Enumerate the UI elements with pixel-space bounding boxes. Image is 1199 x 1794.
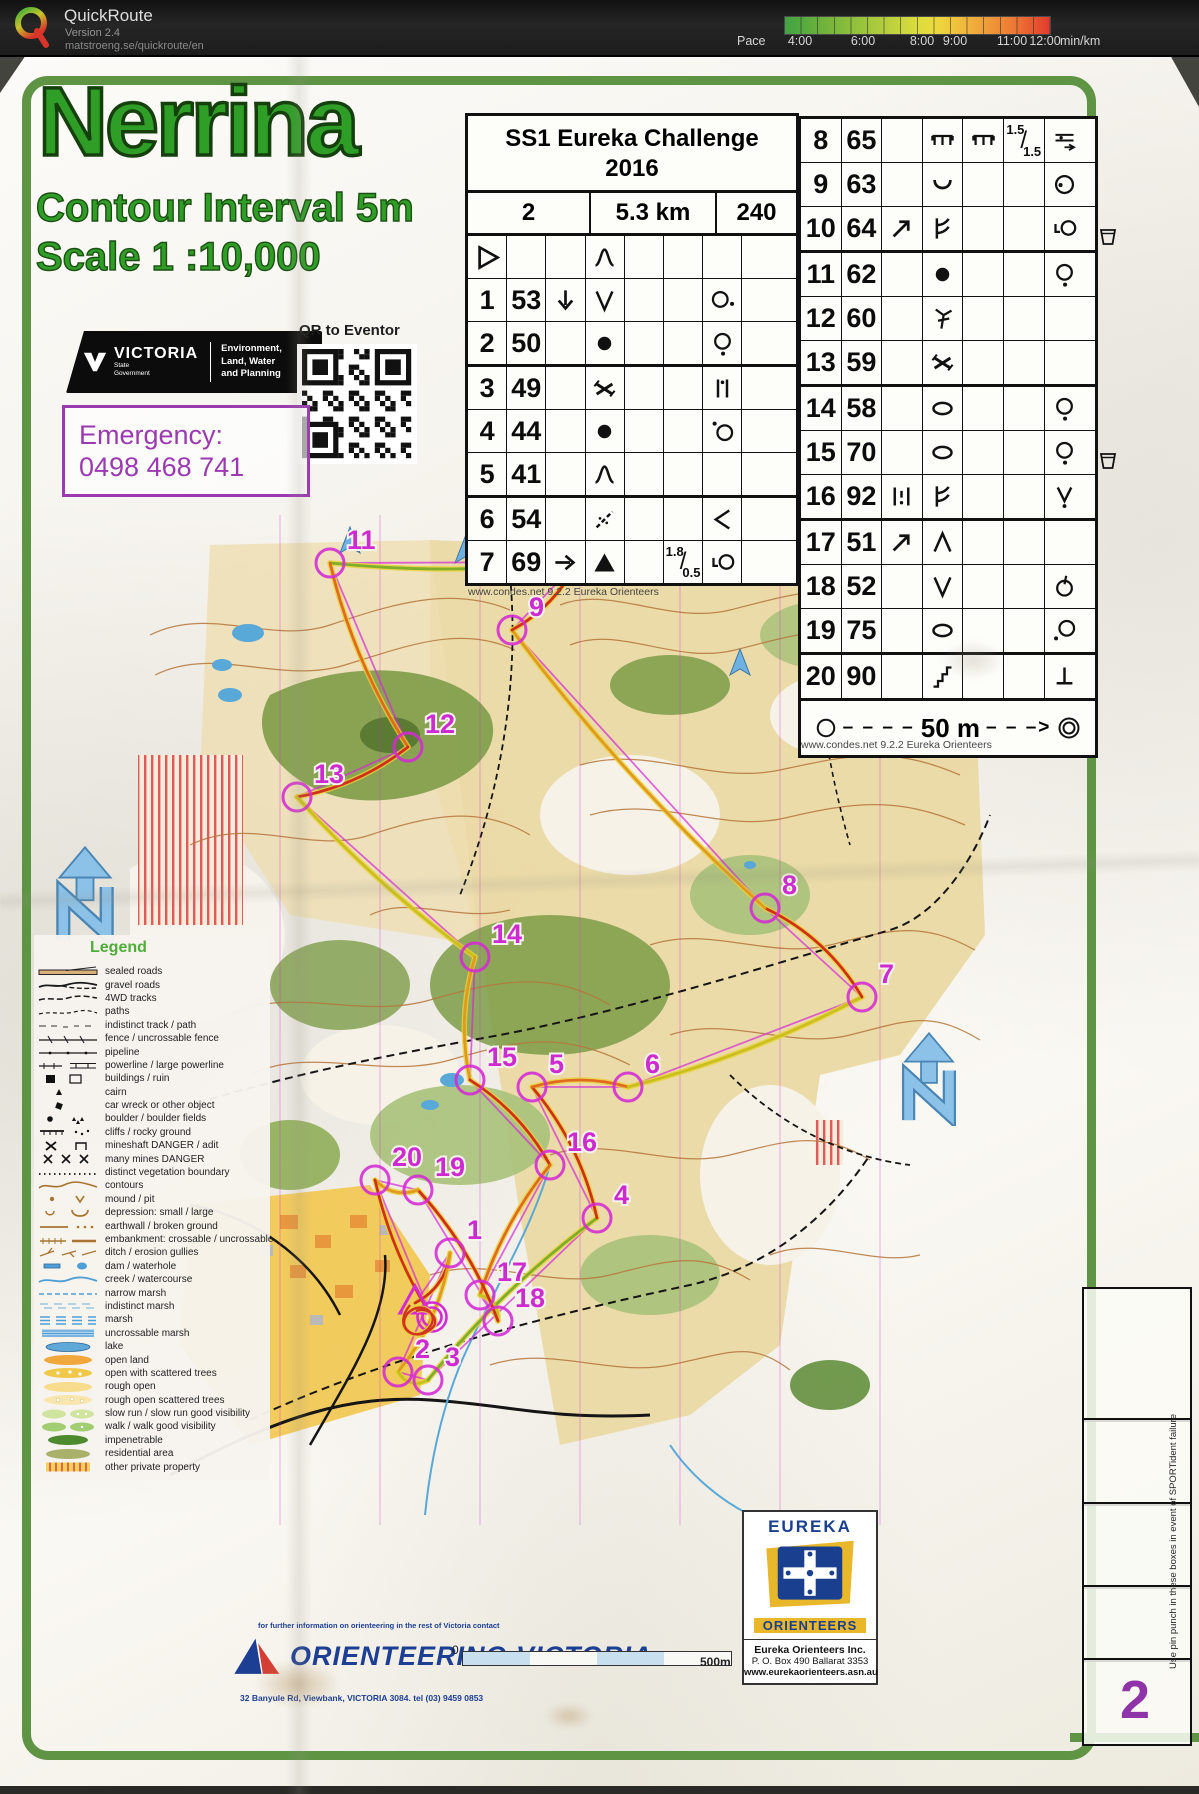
control-desc-cell: [1003, 565, 1044, 608]
legend-item: depression: small / large: [38, 1206, 270, 1219]
v-dot-icon: [1051, 483, 1078, 510]
control-desc-cell: [624, 322, 663, 364]
control-desc-cell: [585, 322, 624, 364]
control-desc-cell: [545, 236, 584, 278]
control-desc-cell: [922, 163, 963, 206]
control-desc-cell: [663, 279, 702, 321]
legend-label: ditch / erosion gullies: [105, 1247, 198, 1258]
control-desc-cell: 17: [801, 521, 841, 564]
legend-item: other private property: [38, 1460, 270, 1473]
eureka-orienteers-box: EUREKA ORIENTEERS Eureka Orienteers Inc.…: [742, 1510, 878, 1685]
control-row: 1162: [801, 250, 1095, 296]
ellipse-icon: [929, 617, 956, 644]
control-desc-cell: [962, 119, 1003, 162]
control-row: [468, 236, 796, 278]
control-desc-cell: 75: [841, 609, 882, 652]
fwd-symbol: [38, 992, 98, 1004]
north-arrow-icon: [898, 1030, 960, 1126]
circle-dot-right-icon: [709, 287, 736, 314]
legend-label: uncrossable marsh: [105, 1328, 189, 1339]
ditch-symbol: [38, 1247, 98, 1259]
control-desc-cell: 64: [841, 207, 882, 250]
control-desc-cell: [624, 279, 663, 321]
control-desc-cell: [881, 163, 922, 206]
control-desc-cell: [624, 541, 663, 583]
control-desc-cell: [1003, 655, 1044, 698]
control-desc-cell: [881, 565, 922, 608]
control-desc-cell: [1003, 609, 1044, 652]
control-desc-cell: 2: [468, 322, 506, 364]
control-desc-cell: [545, 279, 584, 321]
control-desc-cell: [922, 119, 963, 162]
legend-item: boulder / boulder fields: [38, 1112, 270, 1125]
gov-brand-sub2: Government: [114, 370, 150, 377]
gov-dept-line: Land, Water: [221, 356, 282, 368]
legend-label: indistinct track / path: [105, 1020, 196, 1031]
legend-item: powerline / large powerline: [38, 1059, 270, 1072]
control-desc-cell: 54: [506, 498, 545, 540]
legend-label: buildings / ruin: [105, 1073, 169, 1084]
control-desc-cell: [741, 453, 780, 495]
legend-item: residential area: [38, 1447, 270, 1460]
finish-circle-icon: [1057, 716, 1081, 740]
control-desc-cell: 70: [841, 431, 882, 474]
course-number-badge: 2: [1082, 1658, 1188, 1742]
victoria-v-icon: [82, 349, 108, 375]
victoria-gov-logo: VICTORIA State Government Environment, L…: [66, 331, 322, 393]
control-desc-cell: [922, 207, 963, 250]
control-desc-cell: [624, 453, 663, 495]
circle-dot-in-icon: [1051, 171, 1078, 198]
pace-gradient-bar: [785, 17, 1050, 34]
between-cliffs-icon: [709, 375, 736, 402]
control-desc-cell: [922, 387, 963, 430]
pipeline-symbol: [38, 1046, 98, 1058]
emergency-label: Emergency:: [79, 419, 307, 451]
control-desc-cell: 60: [841, 297, 882, 340]
control-row: 153: [468, 278, 796, 321]
control-desc-cell: [1003, 475, 1044, 518]
legend-label: walk / walk good visibility: [105, 1421, 216, 1432]
control-row: 7691.8/0.5: [468, 540, 796, 583]
legend-label: many mines DANGER: [105, 1154, 204, 1165]
control-desc-cell: [1044, 431, 1085, 474]
legend-label: 4WD tracks: [105, 993, 157, 1004]
control-number: 8: [782, 870, 797, 900]
legend-label: boulder / boulder fields: [105, 1113, 206, 1124]
paper-stain: [940, 640, 1006, 680]
roughscat-symbol: [38, 1394, 98, 1406]
control-desc-cell: 51: [841, 521, 882, 564]
control-desc-cell: [741, 541, 780, 583]
control-desc-cell: [881, 655, 922, 698]
control-desc-cell: 18: [801, 565, 841, 608]
legend-label: residential area: [105, 1448, 173, 1459]
control-desc-cell: 62: [841, 253, 882, 296]
boulder-icon: [591, 418, 618, 445]
legend-label: mineshaft DANGER / adit: [105, 1140, 218, 1151]
legend-item: mineshaft DANGER / adit: [38, 1139, 270, 1152]
control-desc-cell: 7: [468, 541, 506, 583]
legend-label: fence / uncrossable fence: [105, 1033, 219, 1044]
pace-tick: 8:00: [910, 34, 934, 48]
legend-item: marsh: [38, 1313, 270, 1326]
control-desc-cell: 4: [468, 410, 506, 452]
spur-icon: [929, 215, 956, 242]
buildings-symbol: [38, 1073, 98, 1085]
legend-item: slow run / slow run good visibility: [38, 1407, 270, 1420]
control-number: 4: [614, 1180, 629, 1210]
earthwall-symbol: [38, 1220, 98, 1232]
hill-icon: [591, 244, 618, 271]
pace-tick: 11:00: [997, 34, 1027, 48]
legend-title: Legend: [90, 939, 270, 957]
control-desc-cell: [881, 431, 922, 474]
control-desc-cell: [1003, 387, 1044, 430]
control-desc-cell: [702, 410, 741, 452]
control-desc-cell: [922, 297, 963, 340]
control-desc-cell: [624, 410, 663, 452]
condes-credit-left: www.condes.net 9.2.2 Eureka Orienteers: [468, 586, 659, 598]
corner-circle-icon: [709, 549, 736, 576]
control-desc-cell: [962, 163, 1003, 206]
control-desc-cell: [702, 498, 741, 540]
control-desc-cell: [506, 236, 545, 278]
openscat-symbol: [38, 1367, 98, 1379]
ruin-icon: [929, 127, 956, 154]
control-desc-cell: [702, 236, 741, 278]
control-desc-cell: [1044, 163, 1085, 206]
gov-brand: VICTORIA: [114, 346, 198, 362]
legend-label: earthwall / broken ground: [105, 1221, 218, 1232]
legend-label: lake: [105, 1341, 123, 1352]
legend-item: indistinct track / path: [38, 1019, 270, 1032]
course-title-line1: SS1 Eureka Challenge: [472, 124, 792, 154]
quickroute-window: QuickRoute Version 2.4 matstroeng.se/qui…: [0, 0, 1199, 1794]
cup-icon: [1096, 448, 1120, 479]
control-desc-cell: [545, 410, 584, 452]
control-desc-cell: 6: [468, 498, 506, 540]
eureka-orienteers-label: ORIENTEERS: [754, 1618, 866, 1633]
walk-symbol: [38, 1421, 98, 1433]
control-number: 15: [487, 1042, 517, 1072]
indmarsh-symbol: [38, 1300, 98, 1312]
control-desc-cell: [1044, 341, 1085, 384]
control-row: 1260: [801, 296, 1095, 340]
v-icon: [591, 287, 618, 314]
legend-label: open with scattered trees: [105, 1368, 217, 1379]
peak-icon: [929, 529, 956, 556]
control-desc-cell: [624, 367, 663, 409]
legend-label: slow run / slow run good visibility: [105, 1408, 250, 1419]
legend-item: 4WD tracks: [38, 992, 270, 1005]
control-number: 12: [425, 709, 455, 739]
control-desc-cell: [1044, 207, 1085, 250]
legend-item: lake: [38, 1340, 270, 1353]
legend-label: open land: [105, 1355, 149, 1366]
control-desc-cell: [741, 498, 780, 540]
control-desc-cell: [1044, 253, 1085, 296]
legend-item: earthwall / broken ground: [38, 1219, 270, 1232]
control-desc-cell: [881, 119, 922, 162]
eureka-website: www.eurekaorienteers.asn.au: [744, 1667, 876, 1678]
control-desc-cell: [741, 410, 780, 452]
legend-item: sealed roads: [38, 965, 270, 978]
control-number: 3: [445, 1342, 460, 1372]
control-desc-cell: [1003, 431, 1044, 474]
arrow-right-icon: [552, 549, 579, 576]
dot-circle-icon: [709, 418, 736, 445]
gravel-symbol: [38, 979, 98, 991]
control-desc-cell: 14: [801, 387, 841, 430]
control-desc-cell: 1.8/0.5: [663, 541, 702, 583]
course-info-row: 2 5.3 km 240: [468, 193, 796, 236]
control-desc-cell: [962, 521, 1003, 564]
paper-stain: [255, 1660, 340, 1708]
control-desc-cell: [962, 207, 1003, 250]
control-desc-cell: 53: [506, 279, 545, 321]
control-desc-cell: [881, 341, 922, 384]
control-desc-cell: [922, 521, 963, 564]
pace-tick: 6:00: [851, 34, 875, 48]
control-desc-cell: [962, 297, 1003, 340]
scan-edge: [0, 1786, 1199, 1794]
control-desc-cell: 9: [801, 163, 841, 206]
condes-credit-right: www.condes.net 9.2.2 Eureka Orienteers: [801, 739, 992, 751]
map-legend: Legend sealed roadsgravel roads4WD track…: [34, 935, 270, 1480]
control-desc-cell: 20: [801, 655, 841, 698]
course-number: 2: [468, 193, 589, 233]
control-number: 14: [492, 919, 522, 949]
control-desc-cell: 13: [801, 341, 841, 384]
control-desc-cell: [624, 236, 663, 278]
control-row: 1751: [801, 518, 1095, 564]
victoria-gov-mark: VICTORIA State Government: [66, 346, 198, 378]
control-row: 444: [468, 409, 796, 452]
control-number: 1: [467, 1215, 482, 1245]
control-number: 18: [515, 1283, 545, 1313]
impen-symbol: [38, 1434, 98, 1446]
control-row: 250: [468, 321, 796, 364]
legend-item: dam / waterhole: [38, 1260, 270, 1273]
uncmarsh-symbol: [38, 1327, 98, 1339]
creek-symbol: [38, 1274, 98, 1286]
control-desc-cell: [962, 341, 1003, 384]
start-icon: [474, 244, 501, 271]
boulderfld-symbol: [38, 1113, 98, 1125]
control-desc-cell: [1003, 341, 1044, 384]
control-desc-cell: [585, 367, 624, 409]
control-desc-cell: [962, 431, 1003, 474]
control-desc-cell: [1044, 609, 1085, 652]
arrow-ne-icon: [888, 215, 915, 242]
legend-item: uncrossable marsh: [38, 1327, 270, 1340]
qr-code: [297, 344, 417, 469]
north-arrow-icon: [52, 845, 118, 945]
control-row: 1064: [801, 206, 1095, 250]
contours-symbol: [38, 1180, 98, 1192]
legend-item: impenetrable: [38, 1434, 270, 1447]
legend-item: creek / watercourse: [38, 1273, 270, 1286]
arrow-ne-icon: [888, 529, 915, 556]
control-desc-cell: 1.5/1.5: [1003, 119, 1044, 162]
control-row: 349: [468, 364, 796, 409]
control-desc-cell: [663, 498, 702, 540]
pace-tick: 4:00: [788, 34, 812, 48]
quickroute-logo-icon: [12, 5, 54, 51]
control-desc-cell: [585, 498, 624, 540]
control-desc-cell: [545, 541, 584, 583]
sealed-symbol: [38, 966, 98, 978]
course-climb: 240: [715, 193, 796, 233]
carwreck-symbol: [38, 1100, 98, 1112]
control-desc-cell: 11: [801, 253, 841, 296]
control-number: 19: [435, 1152, 465, 1182]
control-desc-cell: [585, 541, 624, 583]
map-title: Nerrina: [38, 73, 357, 170]
emergency-phone: 0498 468 741: [79, 451, 307, 483]
legend-label: sealed roads: [105, 966, 162, 977]
circle-dot-below-icon: [1051, 439, 1078, 466]
legend-item: distinct vegetation boundary: [38, 1166, 270, 1179]
legend-item: embankment: crossable / uncrossable: [38, 1233, 270, 1246]
crossing-icon: [1051, 127, 1078, 154]
control-desc-cell: 65: [841, 119, 882, 162]
control-desc-cell: [1044, 521, 1085, 564]
eureka-name: EUREKA: [744, 1517, 876, 1537]
control-desc-cell: 15: [801, 431, 841, 474]
pace-unit: min/km: [1060, 34, 1100, 48]
ruin-icon: [970, 127, 997, 154]
control-desc-cell: [624, 498, 663, 540]
corner-circle-icon: [1051, 215, 1078, 242]
control-row: 1852: [801, 564, 1095, 608]
pin-punch-note: Use pin punch in these boxes in event of…: [1168, 1289, 1179, 1669]
control-desc-cell: [922, 253, 963, 296]
control-desc-cell: 8: [801, 119, 841, 162]
control-desc-cell: [881, 253, 922, 296]
control-desc-cell: [545, 322, 584, 364]
control-desc-cell: [1044, 387, 1085, 430]
control-desc-cell: [545, 367, 584, 409]
control-desc-cell: [702, 279, 741, 321]
control-desc-cell: 59: [841, 341, 882, 384]
control-desc-cell: [468, 236, 506, 278]
control-desc-cell: [702, 541, 741, 583]
legend-label: depression: small / large: [105, 1207, 213, 1218]
root-icon: [929, 305, 956, 332]
scalebar: [462, 1651, 732, 1666]
control-desc-cell: [741, 367, 780, 409]
control-circle-icon: [815, 717, 837, 739]
legend-label: cliffs / rocky ground: [105, 1127, 191, 1138]
control-desc-cell: [663, 410, 702, 452]
control-desc-cell: [545, 453, 584, 495]
legend-item: ditch / erosion gullies: [38, 1246, 270, 1259]
control-number: 11: [347, 525, 376, 555]
scalebar-zero: 0: [452, 1643, 459, 1657]
ov-contact-note: for further information on orienteering …: [258, 1621, 500, 1630]
embank-symbol: [38, 1234, 98, 1246]
control-desc-cell: 63: [841, 163, 882, 206]
app-url: matstroeng.se/quickroute/en: [65, 40, 204, 52]
less-icon: [709, 506, 736, 533]
control-desc-cell: [585, 410, 624, 452]
narrowmarsh-symbol: [38, 1287, 98, 1299]
mine-icon: [929, 349, 956, 376]
control-number: 16: [567, 1127, 597, 1157]
control-row: 654: [468, 495, 796, 540]
control-row: 1570: [801, 430, 1095, 474]
control-desc-cell: [881, 207, 922, 250]
control-row: 1458: [801, 384, 1095, 430]
legend-label: gravel roads: [105, 980, 160, 991]
arrow-down-icon: [552, 287, 579, 314]
control-desc-cell: 49: [506, 367, 545, 409]
hill-icon: [591, 461, 618, 488]
ellipse-icon: [929, 395, 956, 422]
scalebar-500m: 500m: [700, 1655, 731, 1669]
legend-label: car wreck or other object: [105, 1100, 215, 1111]
legend-label: dam / waterhole: [105, 1261, 176, 1272]
dead-tree-icon: [1051, 663, 1078, 690]
legend-label: embankment: crossable / uncrossable: [105, 1234, 273, 1245]
between-rocks-icon: [888, 483, 915, 510]
control-desc-cell: [1044, 655, 1085, 698]
spur-icon: [929, 483, 956, 510]
control-desc-cell: [881, 521, 922, 564]
path-symbol: [38, 1006, 98, 1018]
cliffs-symbol: [38, 1126, 98, 1138]
control-desc-cell: 5: [468, 453, 506, 495]
control-desc-cell: [545, 498, 584, 540]
ellipse-icon: [929, 439, 956, 466]
control-desc-cell: [962, 387, 1003, 430]
control-desc-cell: 44: [506, 410, 545, 452]
circle-stem-icon: [1051, 573, 1078, 600]
control-number: 2: [415, 1334, 430, 1364]
control-desc-cell: [1003, 297, 1044, 340]
legend-label: paths: [105, 1006, 129, 1017]
control-desc-cell: [881, 297, 922, 340]
control-desc-cell: 52: [841, 565, 882, 608]
control-desc-cell: [1044, 297, 1085, 340]
legend-label: rough open: [105, 1381, 156, 1392]
control-desc-cell: 3: [468, 367, 506, 409]
emergency-box: Emergency: 0498 468 741: [62, 405, 310, 497]
depression-icon: [929, 171, 956, 198]
pace-label: Pace: [737, 34, 766, 48]
map-scale: Scale 1 :10,000: [36, 237, 321, 277]
cup-icon: [1096, 224, 1120, 255]
scan-corner: [0, 55, 26, 93]
resid-symbol: [38, 1448, 98, 1460]
legend-item: car wreck or other object: [38, 1099, 270, 1112]
private-symbol: [38, 1461, 98, 1473]
legend-item: fence / uncrossable fence: [38, 1032, 270, 1045]
control-desc-cell: [962, 565, 1003, 608]
control-desc-cell: 10: [801, 207, 841, 250]
legend-item: gravel roads: [38, 978, 270, 991]
boulder-icon: [591, 330, 618, 357]
control-desc-cell: [1003, 163, 1044, 206]
slowrun-symbol: [38, 1408, 98, 1420]
map-scan: 1234567891011121314151617181920 Nerrina …: [0, 55, 1199, 1794]
legend-item: contours: [38, 1179, 270, 1192]
legend-label: marsh: [105, 1314, 133, 1325]
control-row: 1359: [801, 340, 1095, 384]
control-desc-cell: [663, 236, 702, 278]
